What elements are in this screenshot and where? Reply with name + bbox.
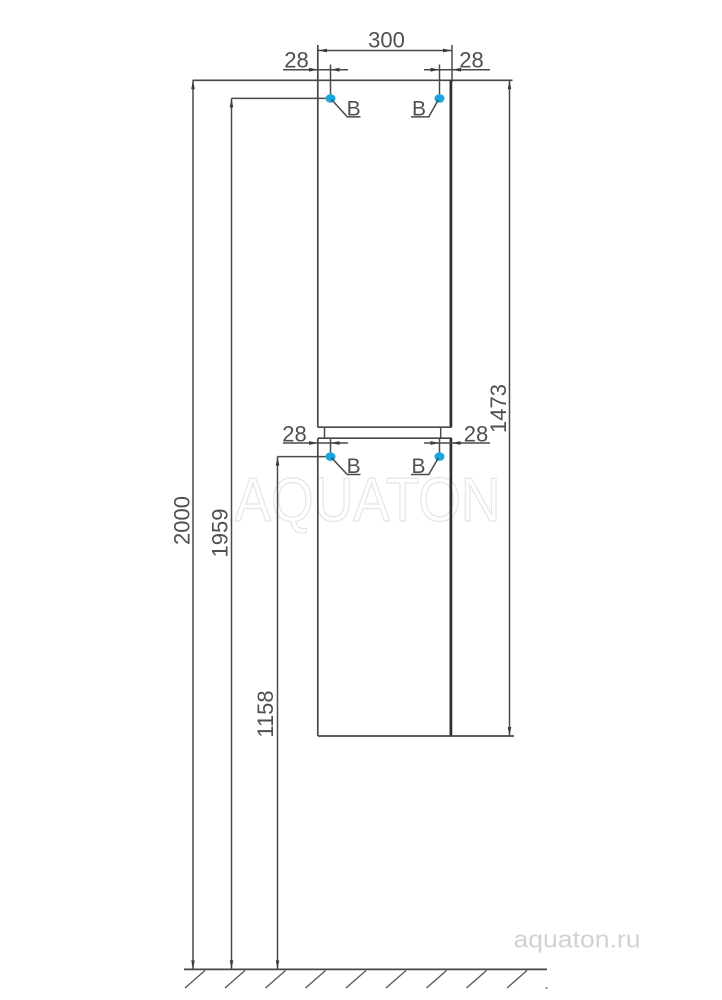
svg-text:300: 300 xyxy=(368,28,405,53)
svg-text:28: 28 xyxy=(282,422,306,447)
svg-text:B: B xyxy=(411,455,425,478)
svg-text:28: 28 xyxy=(284,48,308,73)
svg-text:28: 28 xyxy=(464,422,488,447)
svg-text:aquaton.ru: aquaton.ru xyxy=(514,927,641,954)
svg-text:1959: 1959 xyxy=(208,509,233,558)
svg-text:AQUATON: AQUATON xyxy=(235,466,501,535)
svg-text:1158: 1158 xyxy=(253,690,278,737)
svg-text:B: B xyxy=(347,98,361,121)
svg-text:B: B xyxy=(347,455,361,478)
svg-text:1473: 1473 xyxy=(486,384,511,433)
svg-text:2000: 2000 xyxy=(170,496,195,545)
svg-text:28: 28 xyxy=(459,48,483,73)
svg-text:B: B xyxy=(412,98,426,121)
